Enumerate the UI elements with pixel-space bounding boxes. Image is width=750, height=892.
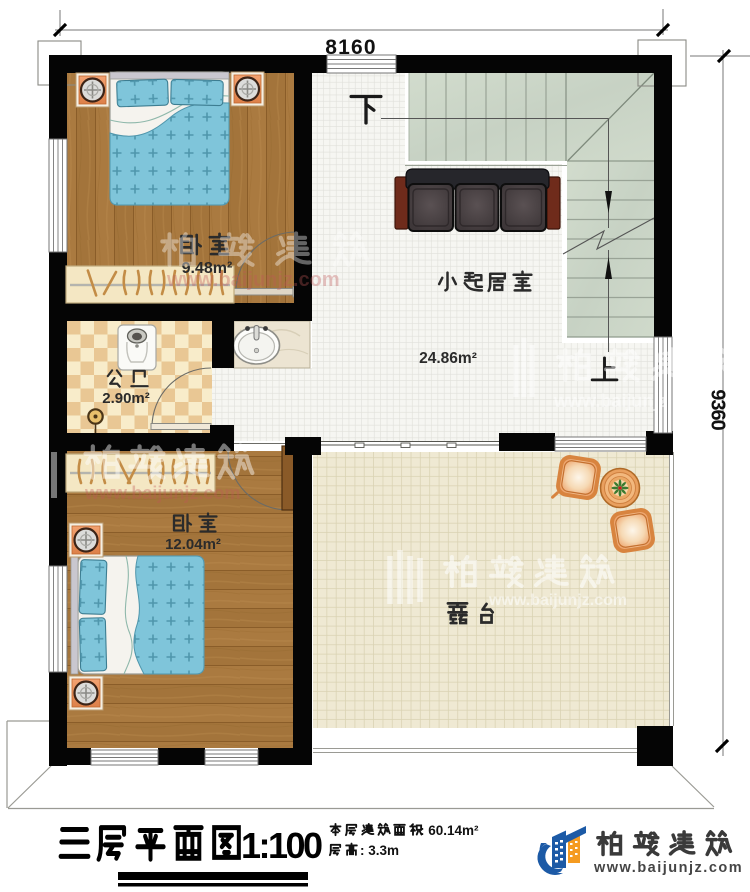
svg-text:www.baijunjz.com: www.baijunjz.com [84,483,240,503]
svg-text:24.86m²: 24.86m² [419,350,477,367]
svg-text:9360: 9360 [707,389,729,430]
svg-text:12.04m²: 12.04m² [165,536,221,553]
svg-text:: 60.14m²: : 60.14m² [420,823,479,838]
svg-text:2.90m²: 2.90m² [102,390,150,407]
svg-text:www.baijunjz.com: www.baijunjz.com [553,391,709,411]
svg-text:www.baijunjz.com: www.baijunjz.com [488,592,627,609]
svg-text:: 3.3m: : 3.3m [360,843,399,858]
svg-text:1:100: 1:100 [241,825,322,866]
svg-text:www.baijunjz.com: www.baijunjz.com [593,860,743,876]
svg-text:8160: 8160 [325,36,377,59]
svg-text:www.baijunjz.com: www.baijunjz.com [166,269,340,291]
